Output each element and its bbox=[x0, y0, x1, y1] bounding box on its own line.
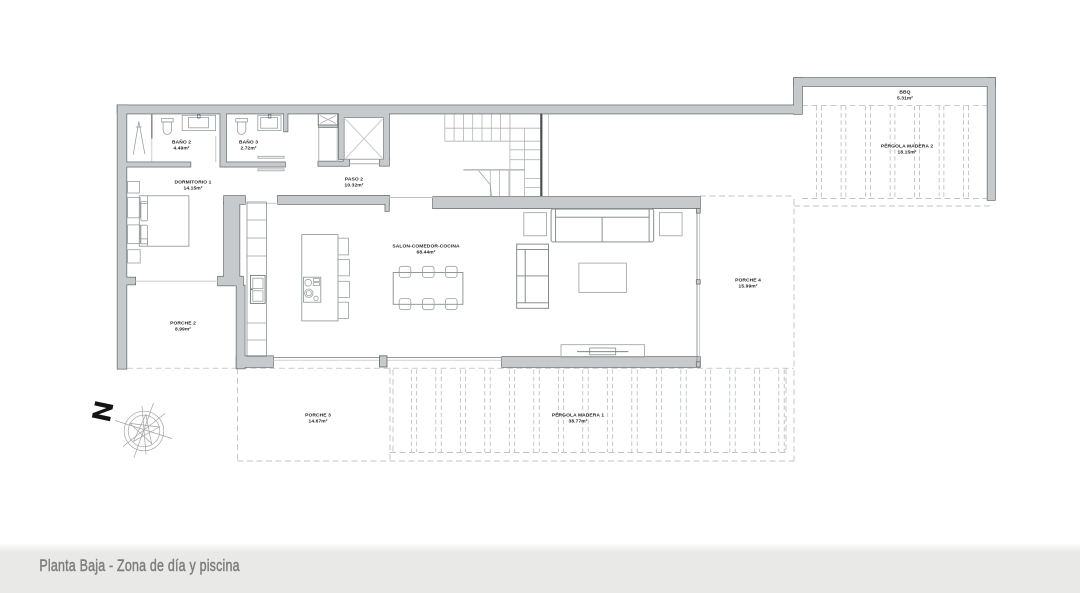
svg-text:5.31m²: 5.31m² bbox=[897, 96, 913, 102]
svg-text:14.67m²: 14.67m² bbox=[309, 419, 328, 425]
svg-text:15.99m²: 15.99m² bbox=[739, 284, 758, 290]
svg-text:PORCHE 2: PORCHE 2 bbox=[170, 321, 196, 327]
svg-text:68.44m²: 68.44m² bbox=[417, 250, 436, 256]
svg-text:DORMITORIO 1: DORMITORIO 1 bbox=[175, 180, 212, 186]
svg-text:SALON-COMEDOR-COCINA: SALON-COMEDOR-COCINA bbox=[392, 244, 460, 250]
svg-text:18.15m²: 18.15m² bbox=[898, 150, 917, 156]
svg-text:Planta Baja - Zona de día y pi: Planta Baja - Zona de día y piscina bbox=[39, 557, 240, 575]
svg-text:PORCHE 4: PORCHE 4 bbox=[735, 278, 761, 284]
svg-text:PASO 2: PASO 2 bbox=[345, 177, 363, 183]
svg-text:PORCHE 3: PORCHE 3 bbox=[305, 413, 331, 419]
svg-text:BAÑO 3: BAÑO 3 bbox=[239, 139, 258, 146]
svg-text:38.77m²: 38.77m² bbox=[569, 419, 588, 425]
svg-text:14.15m²: 14.15m² bbox=[184, 186, 203, 192]
svg-text:BAÑO 2: BAÑO 2 bbox=[172, 139, 191, 146]
svg-text:8.99m²: 8.99m² bbox=[175, 327, 191, 333]
svg-text:4.49m²: 4.49m² bbox=[173, 146, 189, 152]
svg-text:10.32m²: 10.32m² bbox=[345, 183, 364, 189]
svg-text:2.72m²: 2.72m² bbox=[240, 146, 256, 152]
svg-text:BBQ: BBQ bbox=[899, 90, 910, 96]
